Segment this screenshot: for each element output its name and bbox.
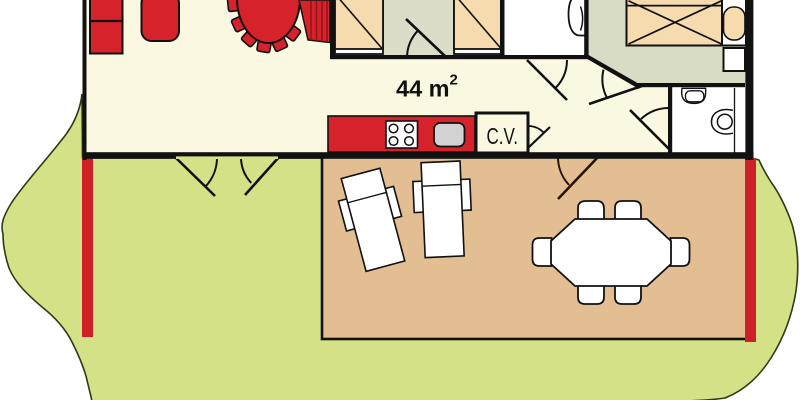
svg-text:44 m: 44 m: [396, 76, 450, 102]
svg-text:C.V.: C.V.: [487, 123, 519, 149]
svg-text:2: 2: [450, 72, 458, 89]
